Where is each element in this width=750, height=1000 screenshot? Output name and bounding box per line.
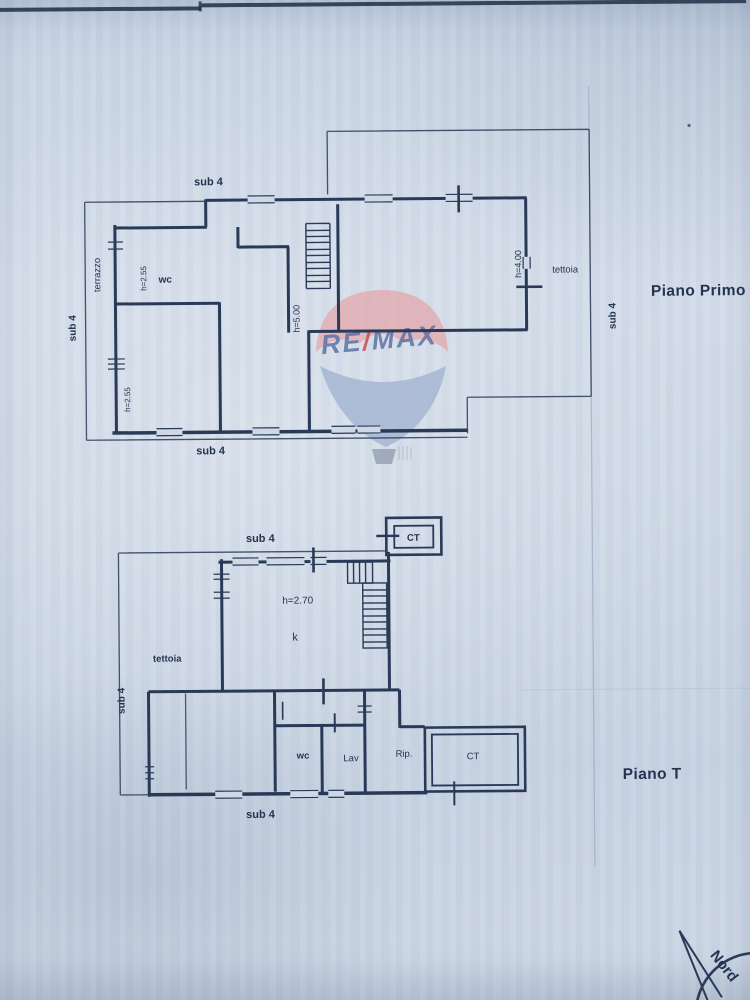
first-floor-windows xyxy=(107,193,533,437)
floor-title-ground: Piano T xyxy=(623,766,682,783)
room-label-ct-box: CT xyxy=(407,533,420,544)
balloon-basket-icon xyxy=(372,449,396,464)
height-label-living: h=5.00 xyxy=(291,305,301,333)
height-label-room: h=2.55 xyxy=(123,387,132,412)
floor-plan-sheet: RE/MAX xyxy=(0,0,750,1000)
balloon-ropes-icon xyxy=(399,446,411,460)
room-label-kitchen: k xyxy=(292,632,298,644)
height-label-kitchen: h=2.70 xyxy=(282,595,313,606)
label-sub4-bottom: sub 4 xyxy=(196,445,226,457)
first-floor-walls xyxy=(111,197,529,433)
north-compass-icon: Nord xyxy=(679,930,750,1000)
label-sub4-left: sub 4 xyxy=(68,315,79,342)
room-label-ct-room: CT xyxy=(467,751,480,762)
label-terrazzo: terrazzo xyxy=(92,258,103,292)
room-label-wc-ground: wc xyxy=(296,751,310,762)
ground-floor-windows xyxy=(143,556,372,800)
label-sub4-left-ground: sub 4 xyxy=(116,687,127,714)
label-sub4-top: sub 4 xyxy=(194,176,224,188)
room-label-rip: Rip. xyxy=(396,749,413,760)
wordmark-max: MAX xyxy=(370,320,438,356)
label-sub4-top-ground: sub 4 xyxy=(246,533,276,545)
floor-title-first: Piano Primo xyxy=(651,282,746,300)
ground-floor-section-marks xyxy=(281,547,334,732)
ground-floor-plan: sub 4 CT h=2.70 k tettoia sub 4 wc Lav R… xyxy=(115,516,682,822)
ground-floor-walls xyxy=(147,552,427,797)
ground-floor-ct-room xyxy=(425,727,526,806)
label-tettoia-right: tettoia xyxy=(552,264,579,275)
ground-floor-stairs xyxy=(347,562,387,648)
height-label-wc: h=2.55 xyxy=(139,266,148,291)
room-label-wc: wc xyxy=(158,275,173,286)
first-floor-stairs xyxy=(306,223,331,288)
balloon-bottom-icon xyxy=(320,366,446,447)
label-tettoia-ground: tettoia xyxy=(153,654,182,665)
label-sub4-right: sub 4 xyxy=(607,303,618,330)
height-label-big-room: h=4.00 xyxy=(513,250,523,278)
label-sub4-bottom-ground: sub 4 xyxy=(246,809,276,821)
room-label-lav: Lav xyxy=(343,753,359,764)
